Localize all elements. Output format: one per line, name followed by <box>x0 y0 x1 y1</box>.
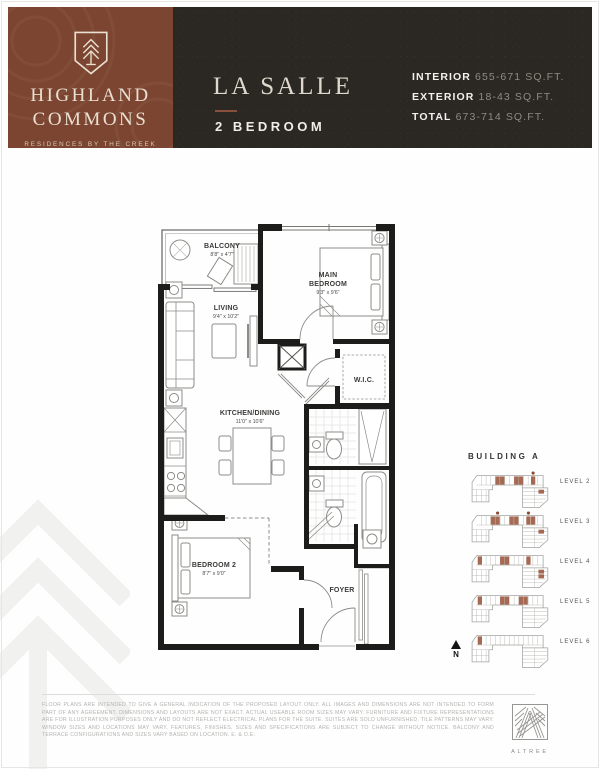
keyplan-row: LEVEL 2 <box>464 471 596 511</box>
balcony-dims: 8'8" x 4'7" <box>210 252 233 258</box>
keyplan-row: LEVEL 4 <box>464 551 596 591</box>
foyer-fixtures <box>358 530 389 644</box>
footer-divider <box>42 694 535 695</box>
keyplan-level-label: LEVEL 4 <box>560 559 590 565</box>
north-label: N <box>449 650 463 659</box>
stat-exterior-label: EXTERIOR <box>412 91 474 103</box>
sofa <box>166 302 194 388</box>
keyplan-footprint <box>464 551 554 594</box>
north-arrow: N <box>449 640 463 659</box>
stat-total-label: TOTAL <box>412 111 452 123</box>
altree-logo-icon <box>512 704 548 740</box>
main-bedroom-label-2: BEDROOM <box>309 281 347 288</box>
dining-set <box>219 428 284 484</box>
living-dims: 9'4" x 10'2" <box>213 314 239 320</box>
balcony-label: BALCONY <box>204 243 240 250</box>
keyplan-row: LEVEL 3 <box>464 511 596 551</box>
toilet-2 <box>327 507 342 527</box>
keyplan-footprint <box>464 591 554 634</box>
kitchen-dims: 11'0" x 10'6" <box>236 419 265 425</box>
stat-exterior-value: 18-43 SQ.FT. <box>479 91 555 103</box>
keyplan-level-label: LEVEL 3 <box>560 519 590 525</box>
keyplan-level-label: LEVEL 2 <box>560 479 590 485</box>
dining-table <box>233 428 271 484</box>
keyplan-section: BUILDING A LEVEL 2 <box>464 452 596 671</box>
plan-name-divider <box>215 110 237 112</box>
toilet-1 <box>327 439 342 459</box>
stat-total-value: 673-714 SQ.FT. <box>456 111 546 123</box>
stat-total: TOTAL 673-714 SQ.FT. <box>412 111 565 123</box>
north-arrow-icon <box>451 640 461 649</box>
developer-logo: ALTREE <box>511 704 549 755</box>
brand-tagline: RESIDENCES BY THE CREEK <box>24 141 156 148</box>
bedroom2-dims: 8'7" x 9'0" <box>202 571 225 577</box>
main-bedroom-dims: 9'3" x 9'6" <box>316 290 339 296</box>
shower <box>359 409 386 464</box>
kitchen-fixtures <box>164 408 284 515</box>
suite-stats: INTERIOR 655-671 SQ.FT. EXTERIOR 18-43 S… <box>412 71 565 131</box>
keyplan-footprint <box>464 511 554 554</box>
header: HIGHLAND COMMONS RESIDENCES BY THE CREEK… <box>8 7 592 148</box>
stat-interior-value: 655-671 SQ.FT. <box>475 71 565 83</box>
developer-logo-text: ALTREE <box>511 749 549 755</box>
kitchen-label: KITCHEN/DINING <box>220 410 281 417</box>
brand-name-line2: COMMONS <box>30 108 150 132</box>
keyplan-row: LEVEL 5 <box>464 591 596 631</box>
floorplan-drawing: BALCONY 8'8" x 4'7" LIVING 9'4" x 10'2" … <box>150 218 404 662</box>
brochure-page: HIGHLAND COMMONS RESIDENCES BY THE CREEK… <box>0 0 600 769</box>
stat-exterior: EXTERIOR 18-43 SQ.FT. <box>412 91 565 103</box>
keyplan-list: LEVEL 2 LEVEL 3 <box>464 471 596 671</box>
closet-slider <box>359 570 363 640</box>
brand-name-line1: HIGHLAND <box>30 84 150 108</box>
main-bedroom-label-1: MAIN <box>319 272 338 279</box>
wic-label: W.I.C. <box>354 377 374 384</box>
stat-interior-label: INTERIOR <box>412 71 471 83</box>
shield-tree-icon <box>73 31 109 75</box>
brand-name: HIGHLAND COMMONS <box>30 84 150 132</box>
stat-interior: INTERIOR 655-671 SQ.FT. <box>412 71 565 83</box>
coffee-table <box>212 324 236 358</box>
keyplan-level-label: LEVEL 6 <box>560 639 590 645</box>
balcony-slider <box>170 285 256 291</box>
balcony-lounger <box>207 244 258 285</box>
foyer-label: FOYER <box>329 587 354 594</box>
plan-type: 2 BEDROOM <box>215 119 325 134</box>
brand-panel: HIGHLAND COMMONS RESIDENCES BY THE CREEK <box>8 7 173 148</box>
disclaimer-text: Floor plans are intended to give a gener… <box>42 702 494 740</box>
hall-closet-doors <box>278 374 329 405</box>
keyplan-row: LEVEL 6 <box>464 631 596 671</box>
living-furniture <box>166 282 257 406</box>
keyplan-level-label: LEVEL 5 <box>560 599 590 605</box>
keyplan-footprint <box>464 631 554 674</box>
plan-name: LA SALLE <box>213 73 353 101</box>
tv-console <box>250 316 257 366</box>
title-panel: LA SALLE 2 BEDROOM INTERIOR 655-671 SQ.F… <box>173 7 592 148</box>
bedroom2-label: BEDROOM 2 <box>192 562 236 569</box>
bedroom-window <box>282 224 376 231</box>
keyplan-footprint <box>464 471 554 514</box>
shaft <box>279 345 305 369</box>
living-label: LIVING <box>214 305 239 312</box>
keyplan-title: BUILDING A <box>464 452 596 461</box>
